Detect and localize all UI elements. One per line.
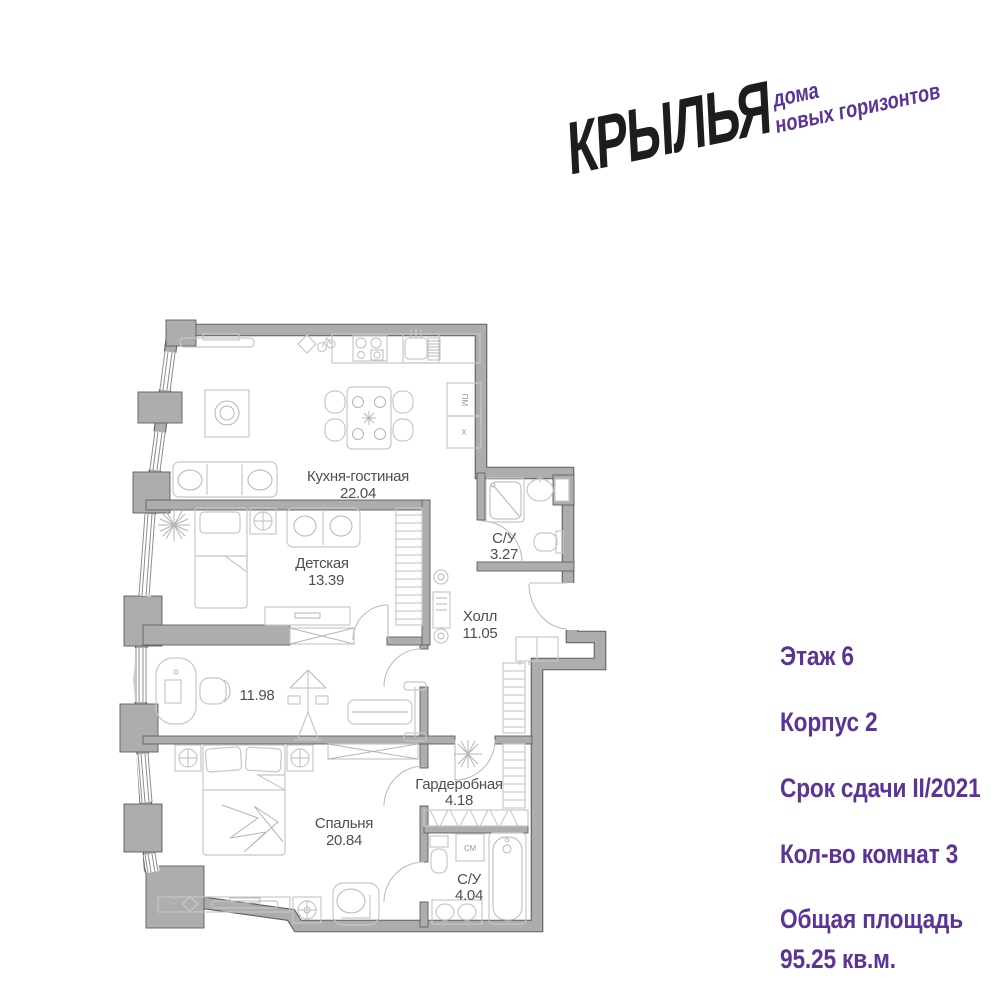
dishwasher-label: ПМ: [460, 394, 469, 407]
room-label-hall: Холл: [463, 608, 497, 625]
dining-table: [325, 387, 413, 449]
room-label-bath2: С/У: [457, 871, 481, 888]
living-sofa: [173, 462, 277, 497]
fridge-label: X: [461, 428, 467, 437]
nursery-nightstand: [250, 508, 276, 534]
room-area-kitchen: 22.04: [340, 485, 376, 502]
kitchen-sink-icon: [403, 329, 440, 363]
room-label-nursery: Детская: [295, 555, 349, 572]
room-area-hall: 11.05: [463, 625, 498, 642]
exercise-machine: [288, 670, 328, 740]
shower-icon: [486, 478, 524, 522]
room-label-bath1: С/У: [492, 530, 516, 547]
kitchen-counter: [332, 334, 480, 363]
bathtub-icon: [489, 833, 526, 924]
shoe-cabinet: [516, 637, 558, 665]
nursery-plant-icon: [158, 509, 190, 541]
nursery-dresser: [265, 607, 350, 625]
hall-console: [433, 570, 450, 643]
room-area-bath1: 3.27: [490, 546, 518, 563]
nursery-bed: [195, 508, 247, 608]
desk: [156, 658, 196, 724]
room-area-bedroom: 20.84: [326, 832, 362, 849]
bath2-toilet-icon: [430, 836, 448, 873]
bath2-door-arc: [384, 862, 424, 902]
bedroom-nightstand-left: [175, 745, 201, 771]
facade-pillars: [120, 320, 204, 928]
wardrobe-plant-icon: [454, 740, 482, 768]
room-area-nursery: 13.39: [308, 572, 344, 589]
bath1-sink-icon: [527, 476, 553, 501]
room-area-bath2: 4.04: [455, 887, 483, 904]
nursery-door-arc: [353, 605, 388, 640]
washer-label: СМ: [464, 844, 477, 853]
bedroom-armchair: [333, 883, 379, 925]
floorplan: ПМ X: [0, 0, 1000, 1000]
room-label-bedroom: Спальня: [315, 815, 373, 832]
flat-plan-page: { "logo": { "brand": "КРЫЛЬЯ", "tagline_…: [0, 0, 1000, 1000]
wardrobe-door-arc: [455, 740, 495, 780]
bath1-toilet-icon: [534, 531, 563, 553]
room-door-arc: [384, 649, 421, 687]
gym-bench: [348, 700, 412, 724]
bedroom-nightstand-right: [287, 745, 313, 771]
decor-diamond-icon: [298, 335, 316, 353]
room-area-wardrobe: 4.18: [445, 792, 473, 809]
plant-box: [205, 390, 249, 437]
room-label-kitchen: Кухня-гостиная: [307, 468, 409, 485]
washing-machine: СМ: [456, 834, 484, 861]
desk-chair: [200, 678, 230, 704]
room-area-cabinet: 11.98: [240, 687, 275, 704]
entry-door-arc: [529, 584, 567, 629]
room-labels: Кухня-гостиная 22.04 Детская 13.39 С/У 3…: [240, 468, 518, 904]
double-bed: [203, 745, 285, 855]
room-label-wardrobe: Гардеробная: [415, 776, 503, 793]
nursery-sofa: [287, 508, 360, 547]
stove-icon: [353, 336, 387, 361]
